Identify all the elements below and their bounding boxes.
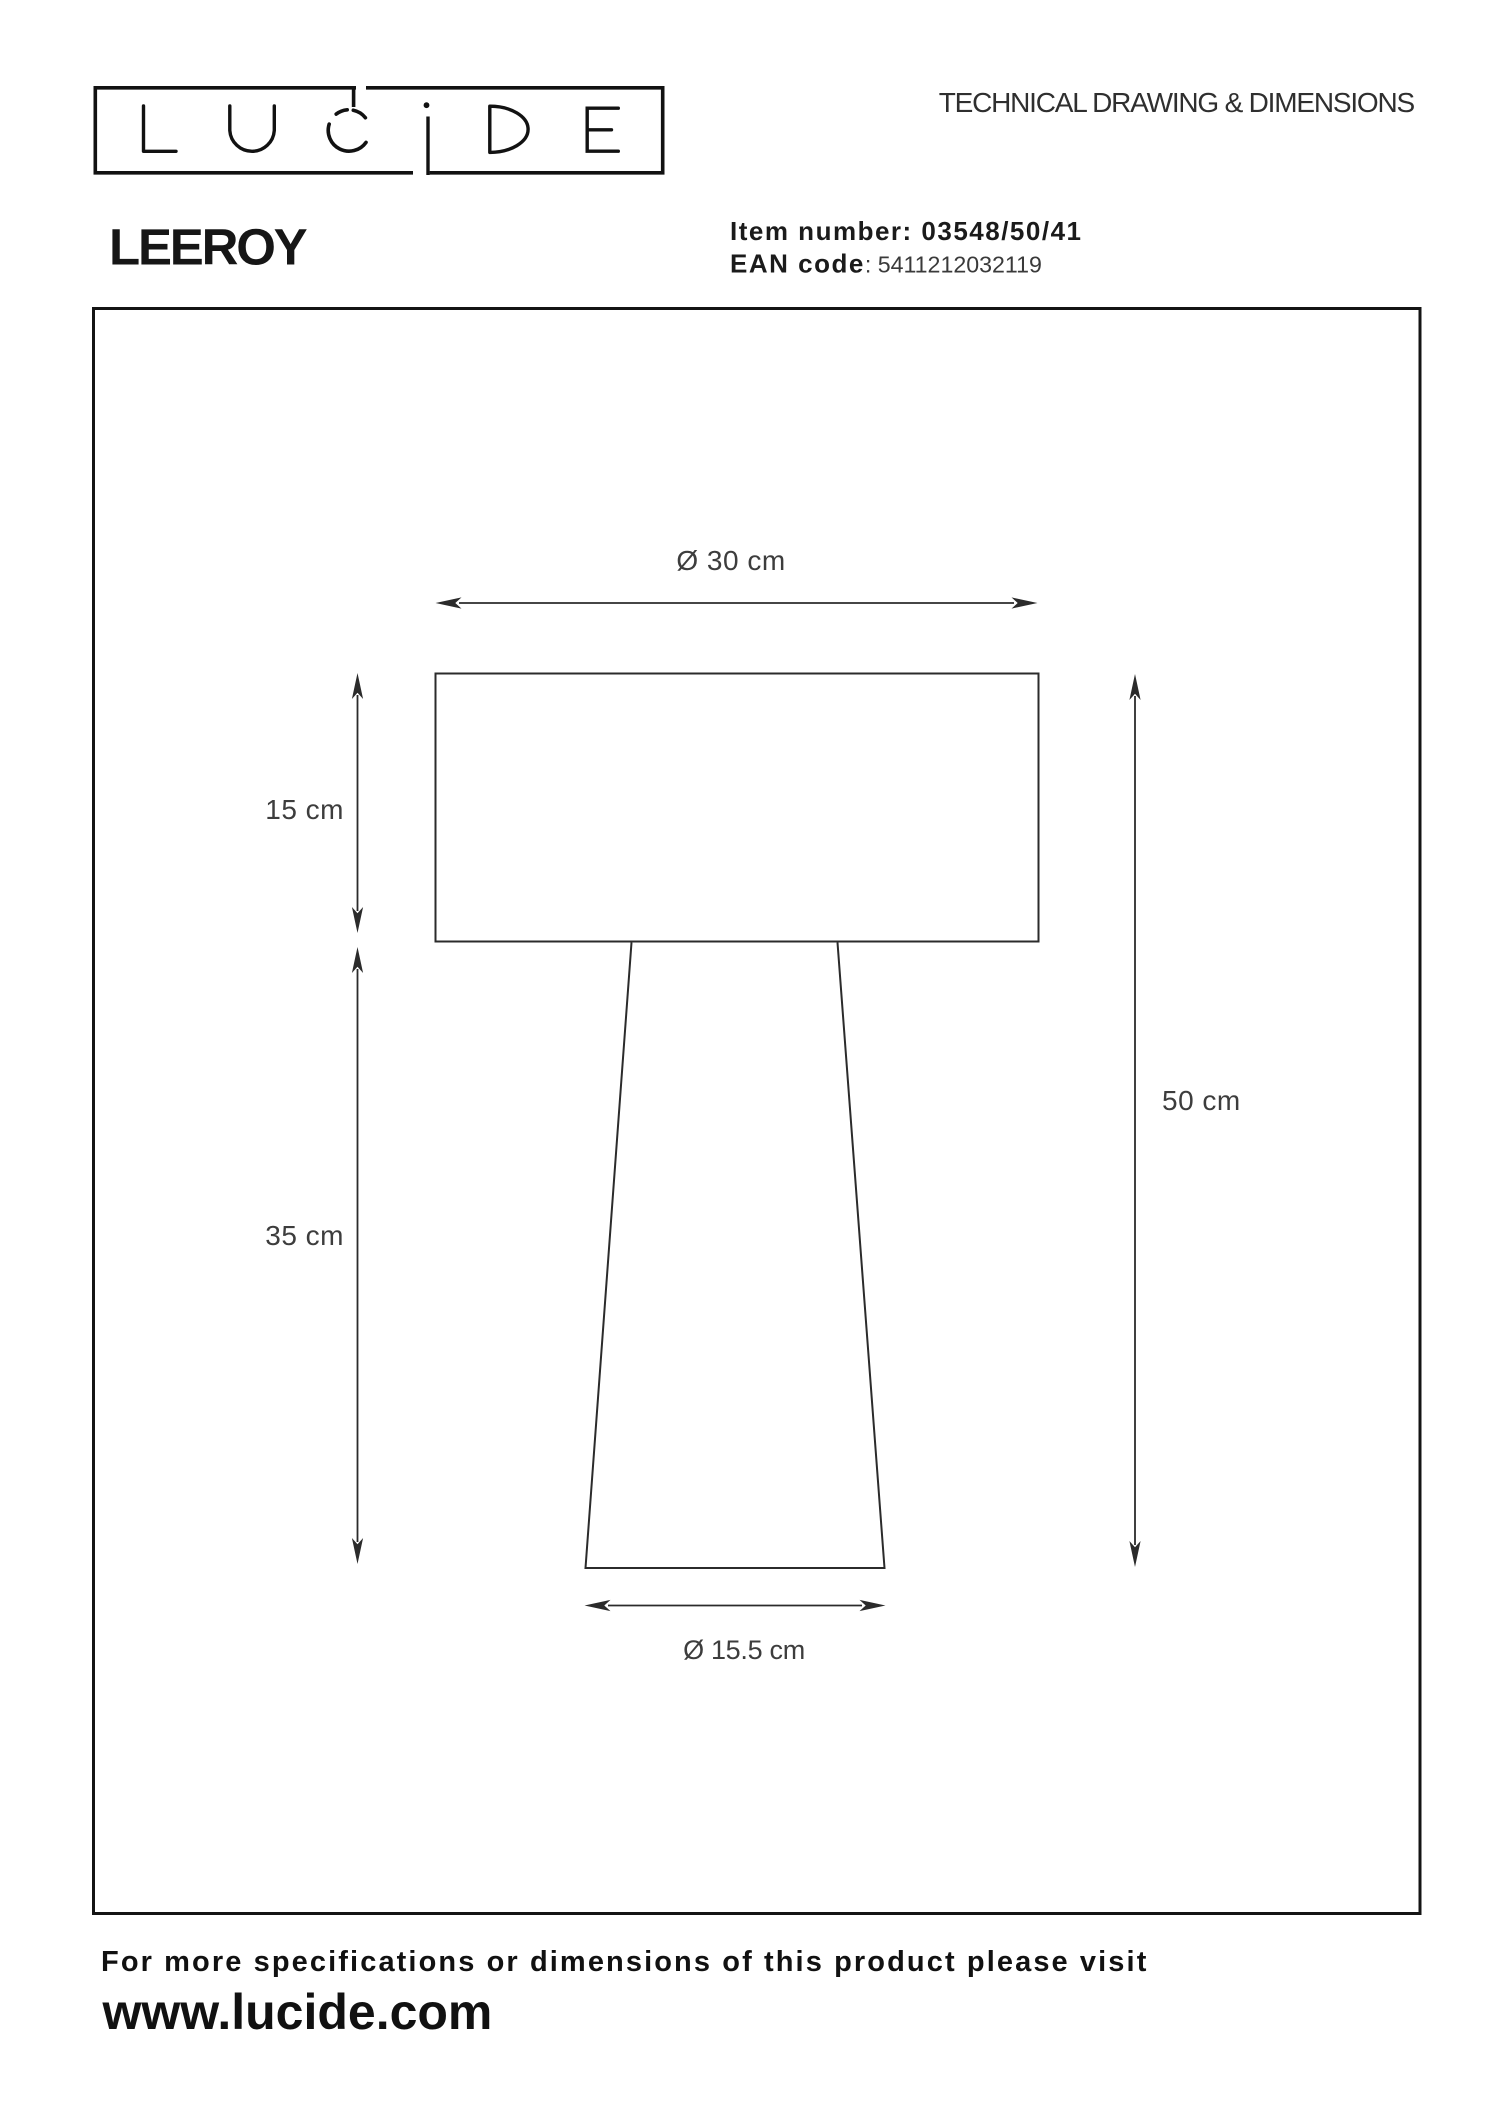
svg-text:EAN code: 5411212032119: EAN code: 5411212032119 — [730, 249, 1042, 279]
svg-text:50 cm: 50 cm — [1162, 1085, 1241, 1116]
svg-text:15 cm: 15 cm — [265, 794, 344, 825]
svg-text:For more specifications or dim: For more specifications or dimensions of… — [101, 1946, 1148, 1978]
svg-text:TECHNICAL DRAWING & DIMENSIONS: TECHNICAL DRAWING & DIMENSIONS — [939, 87, 1415, 118]
svg-text:Ø 15.5 cm: Ø 15.5 cm — [683, 1635, 805, 1665]
svg-text:Item number: 03548/50/41: Item number: 03548/50/41 — [730, 216, 1083, 246]
svg-text:www.lucide.com: www.lucide.com — [102, 1984, 493, 2040]
svg-text:LEEROY: LEEROY — [109, 219, 308, 276]
svg-text:Ø 30 cm: Ø 30 cm — [676, 545, 785, 576]
svg-text:35 cm: 35 cm — [265, 1220, 344, 1251]
